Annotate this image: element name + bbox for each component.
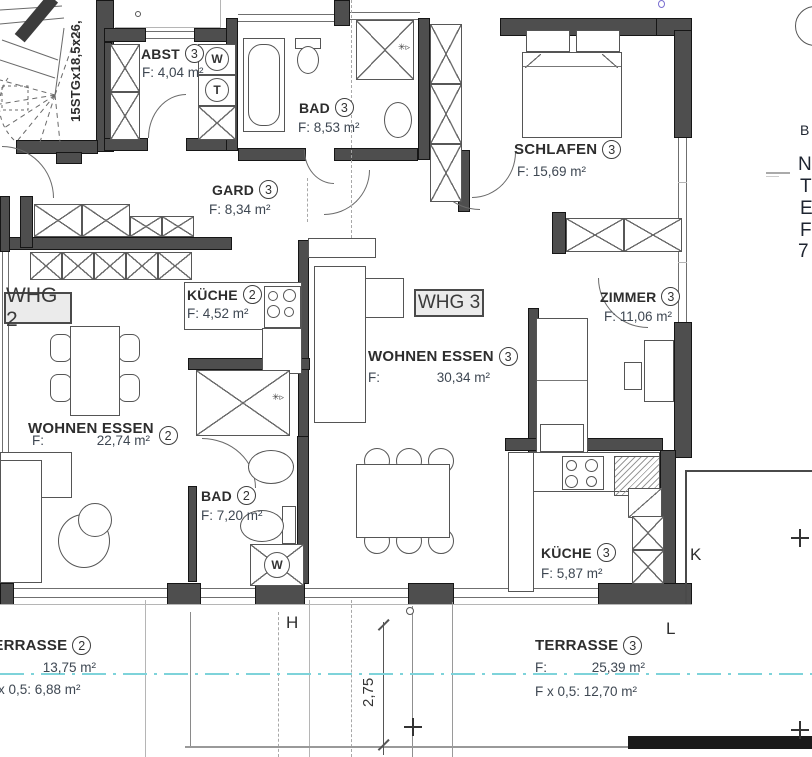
edge-letter: F bbox=[800, 220, 812, 242]
wall bbox=[418, 18, 430, 160]
bed-foot bbox=[540, 424, 584, 452]
wall bbox=[674, 30, 692, 138]
door-arc bbox=[472, 152, 516, 198]
wall bbox=[238, 148, 306, 161]
small-marker bbox=[135, 11, 141, 17]
wall bbox=[167, 583, 201, 605]
survey-cross bbox=[791, 529, 809, 547]
closet-box bbox=[430, 24, 462, 84]
burner-icon bbox=[586, 476, 597, 487]
shaft-box bbox=[632, 516, 664, 550]
window bbox=[350, 12, 420, 20]
terrace3-outline-v bbox=[685, 470, 687, 604]
washer-icon: W bbox=[205, 47, 229, 71]
center-axis-line bbox=[351, 600, 352, 757]
cut-circle bbox=[795, 6, 812, 46]
bed-line bbox=[537, 380, 587, 381]
wall bbox=[334, 0, 350, 26]
terrace3-line bbox=[452, 602, 453, 757]
wardrobe-box bbox=[126, 252, 158, 280]
shower bbox=[196, 370, 290, 436]
window bbox=[146, 31, 194, 39]
burner-icon bbox=[565, 475, 578, 488]
room-label-gard: GARD3 bbox=[212, 180, 278, 199]
dimension-line bbox=[383, 622, 384, 755]
chair bbox=[50, 334, 72, 362]
survey-cross bbox=[791, 721, 809, 739]
nightstand bbox=[576, 30, 620, 52]
unit-number-badge: 3 bbox=[661, 287, 680, 306]
unit-number-badge: 2 bbox=[72, 636, 91, 655]
sink bbox=[384, 102, 412, 138]
edge-tick bbox=[766, 172, 790, 174]
window bbox=[201, 588, 255, 598]
dryer-icon: T bbox=[205, 78, 229, 102]
room-area-kueche3: F: 5,87 m² bbox=[541, 566, 603, 581]
bathtub-inner bbox=[248, 44, 280, 126]
wall bbox=[674, 322, 692, 458]
unit-number-badge: 2 bbox=[243, 285, 262, 304]
wardrobe-box bbox=[158, 252, 192, 280]
wardrobe-box bbox=[34, 204, 82, 237]
toilet-tank bbox=[282, 506, 296, 544]
side-table bbox=[78, 503, 112, 537]
unit-number-badge: 3 bbox=[499, 347, 518, 366]
unit-number-badge: 3 bbox=[335, 98, 354, 117]
wall bbox=[552, 212, 566, 254]
room-label-schlafen: SCHLAFEN3 bbox=[514, 140, 621, 159]
toilet-bowl bbox=[297, 46, 319, 74]
unit-number-badge: 3 bbox=[602, 140, 621, 159]
burner-icon bbox=[283, 289, 296, 302]
axis-line-cyan bbox=[0, 673, 812, 675]
edge-letter: T bbox=[800, 176, 812, 198]
terrace2-area: F:13,75 m² bbox=[0, 660, 96, 675]
room-label-bad2: BAD2 bbox=[201, 486, 256, 505]
grid-letter-l: L bbox=[666, 619, 675, 639]
desk-chair bbox=[624, 362, 642, 390]
sideboard bbox=[308, 238, 376, 258]
kitchen-counter bbox=[262, 328, 302, 374]
bottom-wall-line bbox=[628, 736, 812, 749]
desk bbox=[644, 340, 674, 402]
stair-label: 15STGx18,5x26, bbox=[68, 4, 83, 122]
terrace2-boundary bbox=[190, 612, 191, 747]
door-opening-dash bbox=[307, 178, 308, 222]
wardrobe-box bbox=[82, 204, 130, 237]
landing-line bbox=[115, 27, 221, 28]
window-mullion bbox=[678, 262, 687, 263]
window bbox=[2, 252, 9, 457]
dining-table bbox=[70, 326, 120, 416]
room-area-wohnen2: F:22,74 m² bbox=[32, 433, 150, 448]
wall bbox=[8, 237, 232, 250]
center-axis-line bbox=[351, 0, 352, 238]
chair bbox=[118, 374, 140, 402]
landing-line bbox=[220, 0, 221, 28]
edge-letter: B bbox=[800, 122, 809, 138]
window-mullion bbox=[678, 182, 687, 183]
burner-icon bbox=[268, 291, 278, 301]
room-label-kueche2: KÜCHE2 bbox=[187, 285, 262, 304]
sofa bbox=[0, 460, 42, 583]
wardrobe-box bbox=[30, 252, 62, 280]
small-marker bbox=[658, 0, 665, 8]
unit-number-badge: 3 bbox=[597, 543, 616, 562]
wall bbox=[188, 486, 197, 582]
terrace-line bbox=[309, 600, 310, 757]
unit-number-badge: 3 bbox=[185, 44, 204, 63]
room-label-abst: ABST3 bbox=[141, 44, 204, 63]
wardrobe-box bbox=[130, 216, 162, 237]
chair bbox=[50, 374, 72, 402]
floor-plan: 15STGx18,5x26, bbox=[0, 0, 812, 757]
wardrobe-box bbox=[94, 252, 126, 280]
burner-icon bbox=[566, 460, 577, 471]
grid-letter-k: K bbox=[690, 545, 701, 565]
wall bbox=[104, 28, 146, 42]
wardrobe-box bbox=[624, 218, 682, 252]
sofa bbox=[314, 266, 366, 423]
unit-badge-whg3: WHG 3 bbox=[414, 289, 484, 317]
nightstand bbox=[526, 30, 570, 52]
wall bbox=[408, 583, 454, 605]
room-area-abst: F: 4,04 m² bbox=[142, 65, 204, 80]
room-label-zimmer: ZIMMER3 bbox=[600, 287, 680, 306]
door-arc bbox=[324, 170, 370, 215]
grid-line-h bbox=[278, 612, 279, 757]
shaft-box bbox=[110, 44, 140, 92]
room-label-bad3: BAD3 bbox=[299, 98, 354, 117]
wardrobe-box bbox=[62, 252, 94, 280]
room-area-kueche2: F: 4,52 m² bbox=[187, 306, 249, 321]
grid-letter-h: H bbox=[286, 613, 298, 633]
wall bbox=[0, 196, 10, 252]
wall bbox=[334, 148, 418, 161]
wall bbox=[598, 583, 692, 605]
kitchen-counter bbox=[508, 452, 534, 592]
counter-corner-line bbox=[628, 488, 662, 518]
bottom-thin-line bbox=[185, 746, 630, 748]
unit-number-badge: 2 bbox=[159, 426, 178, 445]
terrace-line bbox=[145, 600, 146, 757]
edge-letter: E bbox=[800, 198, 812, 220]
wall bbox=[0, 583, 14, 605]
washer-icon: W bbox=[264, 552, 290, 578]
terrace2-half-area: F x 0,5: 6,88 m² bbox=[0, 682, 81, 697]
terrace-edge-line bbox=[0, 604, 692, 605]
room-area-bad2: F: 7,20 m² bbox=[201, 508, 263, 523]
room-area-gard: F: 8,34 m² bbox=[209, 202, 271, 217]
window bbox=[238, 14, 336, 22]
edge-tick bbox=[766, 176, 779, 177]
shower-icon: ✳▹ bbox=[398, 42, 410, 53]
room-label-wohnen3: WOHNEN ESSEN3 bbox=[368, 347, 518, 366]
closet-box bbox=[430, 144, 462, 202]
shower-icon: ✳▹ bbox=[272, 392, 284, 403]
shaft-box bbox=[198, 106, 236, 140]
terrace2-label: TERRASSE2 bbox=[0, 636, 91, 655]
unit-number-badge: 3 bbox=[259, 180, 278, 199]
bed-line bbox=[523, 66, 621, 67]
terrace3-area: F:25,39 m² bbox=[535, 660, 645, 675]
door-arc bbox=[148, 94, 186, 138]
unit-number-badge: 3 bbox=[623, 636, 642, 655]
dimension-value: 2,75 bbox=[360, 655, 377, 707]
wall bbox=[255, 583, 305, 605]
room-area-schlafen: F: 15,69 m² bbox=[517, 164, 586, 179]
closet-box bbox=[430, 84, 462, 144]
edge-letter: 7 bbox=[798, 241, 809, 263]
dining-table bbox=[356, 464, 450, 538]
window bbox=[305, 588, 408, 598]
spiral-staircase-icon bbox=[0, 0, 98, 154]
edge-letter: N bbox=[798, 154, 812, 176]
burner-icon bbox=[267, 305, 280, 318]
burner-icon bbox=[585, 459, 598, 472]
room-area-wohnen3: F:30,34 m² bbox=[368, 370, 490, 385]
wardrobe-box bbox=[162, 216, 194, 237]
unit-badge-whg2: WHG 2 bbox=[4, 292, 72, 324]
terrace3-label: TERRASSE3 bbox=[535, 636, 642, 655]
burner-icon bbox=[284, 307, 294, 317]
shaft-box bbox=[110, 92, 140, 140]
survey-point bbox=[406, 607, 414, 615]
window bbox=[14, 588, 167, 598]
unit-number-badge: 2 bbox=[237, 486, 256, 505]
survey-cross bbox=[404, 718, 422, 736]
wall bbox=[20, 196, 33, 248]
wardrobe-box bbox=[566, 218, 624, 252]
room-label-kueche3: KÜCHE3 bbox=[541, 543, 616, 562]
terrace3-half-area: F x 0,5: 12,70 m² bbox=[535, 684, 637, 699]
shaft-box bbox=[632, 550, 664, 584]
room-area-zimmer: F: 11,06 m² bbox=[604, 309, 672, 324]
room-area-bad3: F: 8,53 m² bbox=[298, 120, 360, 135]
chair bbox=[118, 334, 140, 362]
sink bbox=[248, 450, 294, 484]
terrace3-outline-h bbox=[685, 470, 812, 472]
